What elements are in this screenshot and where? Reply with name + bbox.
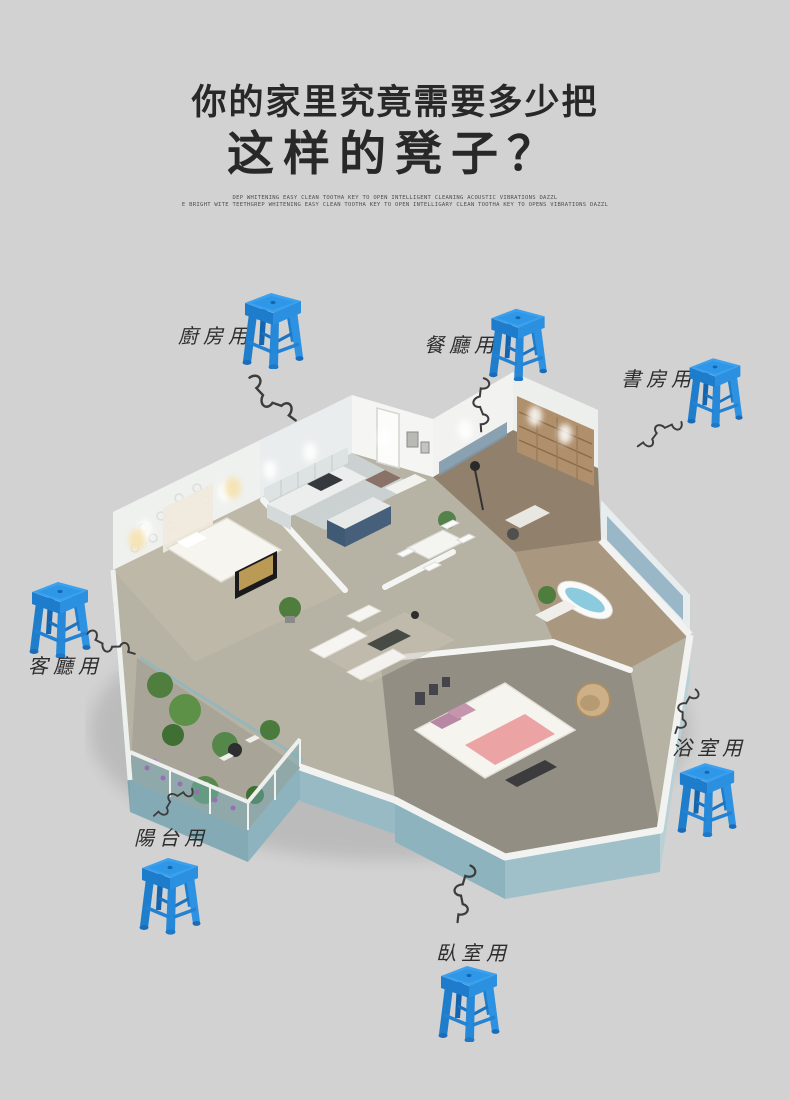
poster-title-line1: 你的家里究竟需要多少把 (0, 84, 790, 123)
poster-title-line2: 这样的凳子？ (0, 127, 790, 181)
poster: 你的家里究竟需要多少把 这样的凳子？ DEP WHITENING EASY CL… (0, 0, 790, 1100)
poster-subtext-line2: E BRIGHT WITE TEETHGREP WHITENING EASY C… (0, 202, 790, 209)
stool-icon (686, 352, 744, 428)
poster-header: 你的家里究竟需要多少把 这样的凳子？ DEP WHITENING EASY CL… (0, 84, 790, 209)
poster-subtext: DEP WHITENING EASY CLEAN TOOTHA KEY TO O… (0, 195, 790, 209)
stool-icon (138, 851, 202, 935)
stool-icon (487, 303, 549, 381)
stool-icon (676, 757, 738, 837)
stool-icon (240, 287, 306, 369)
stool-icon (437, 960, 501, 1042)
squiggle-line (446, 863, 488, 935)
callout-study-label: 書房用 (621, 363, 696, 392)
callout-balcony-label: 陽台用 (134, 822, 209, 851)
poster-subtext-line1: DEP WHITENING EASY CLEAN TOOTHA KEY TO O… (0, 195, 790, 202)
